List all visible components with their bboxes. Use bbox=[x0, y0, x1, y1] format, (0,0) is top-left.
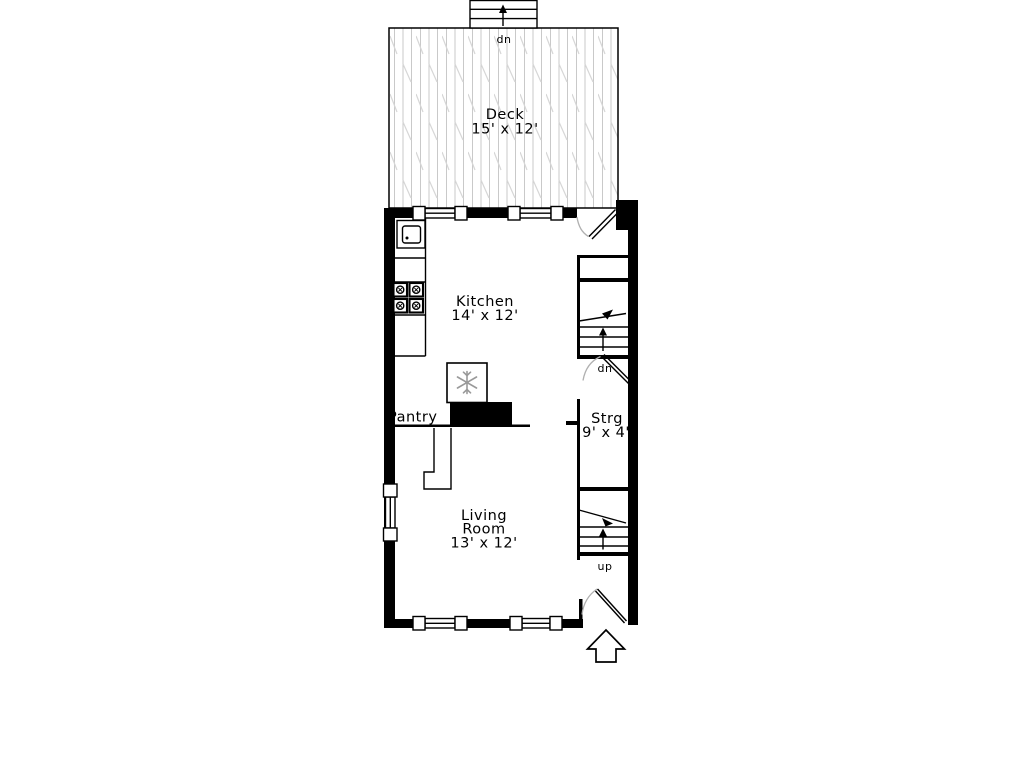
stove-burner bbox=[394, 283, 408, 297]
entry-door-leaf bbox=[598, 589, 627, 621]
storage-dims: 9' x 4' bbox=[582, 425, 630, 441]
refrigerator bbox=[447, 363, 487, 403]
deck-stairs bbox=[470, 1, 537, 29]
stairs-up-arrow-icon bbox=[599, 328, 607, 336]
interior-walls bbox=[395, 218, 628, 560]
floor-plan-canvas: Deck 15' x 12' dn Kitchen 14' x 12' Pant… bbox=[0, 0, 1024, 768]
stove-burner bbox=[410, 283, 424, 297]
stairs-break-line bbox=[579, 510, 626, 523]
stove-burner bbox=[394, 299, 408, 313]
stove bbox=[394, 283, 424, 313]
stairs-break-arrow-icon bbox=[602, 310, 613, 320]
pantry-label: Pantry bbox=[388, 410, 437, 426]
deck-dims: 15' x 12' bbox=[471, 122, 538, 138]
basement-stairs bbox=[579, 310, 628, 352]
entry-door-swing-arc bbox=[582, 589, 597, 615]
sink-faucet-dot bbox=[406, 237, 409, 240]
deck-stairs-label: dn bbox=[497, 33, 512, 46]
pantry-enclosure-outline bbox=[424, 428, 451, 489]
stairwell-wall-upper bbox=[577, 255, 580, 358]
entry-door bbox=[582, 589, 627, 623]
upper-stairs-label: up bbox=[598, 560, 613, 573]
deck-door-leaf bbox=[589, 210, 616, 237]
entry-door-jamb bbox=[579, 599, 583, 620]
living-room-dims: 13' x 12' bbox=[450, 536, 517, 552]
window-living-bottom-right bbox=[510, 617, 562, 631]
upper-stairs bbox=[579, 510, 628, 550]
stairs-break-line bbox=[579, 314, 626, 322]
window-living-side bbox=[384, 484, 398, 541]
basement-stairs-label: dn bbox=[598, 362, 613, 375]
window-kitchen-right bbox=[508, 207, 563, 221]
window-kitchen-left bbox=[413, 207, 467, 221]
kitchen-dims: 14' x 12' bbox=[451, 308, 518, 324]
stove-burner bbox=[410, 299, 424, 313]
storage-door-stub bbox=[566, 421, 578, 425]
stairs-up-arrow-icon bbox=[599, 529, 607, 537]
right-wall bbox=[628, 208, 638, 625]
kitchen-sink bbox=[397, 221, 425, 249]
deck-door-swing-arc bbox=[577, 217, 589, 237]
floor-plan-drawing: Deck 15' x 12' dn Kitchen 14' x 12' Pant… bbox=[0, 0, 1024, 768]
entry-arrow-icon bbox=[588, 630, 625, 662]
deck-door bbox=[577, 210, 619, 240]
window-living-bottom-left bbox=[413, 617, 467, 631]
pantry-solid-block bbox=[450, 402, 512, 425]
